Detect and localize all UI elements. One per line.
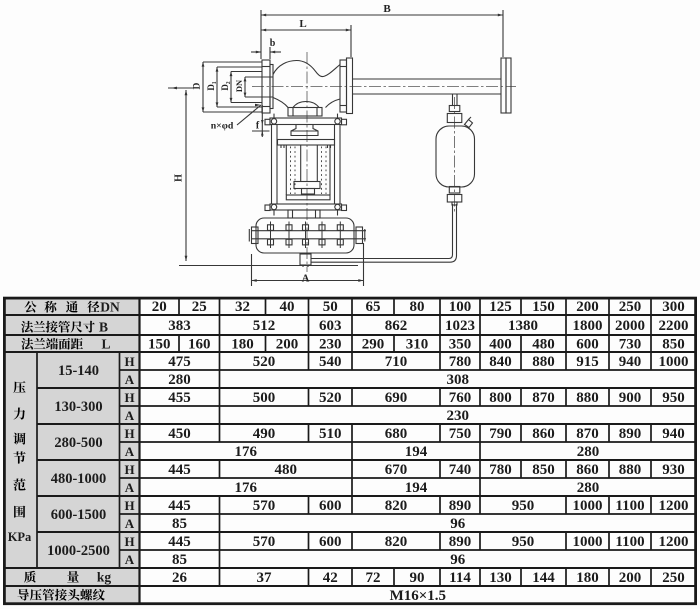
svg-text:400: 400 xyxy=(489,337,512,353)
svg-text:f: f xyxy=(256,121,260,132)
svg-text:520: 520 xyxy=(253,354,276,370)
svg-text:194: 194 xyxy=(405,480,428,496)
svg-text:540: 540 xyxy=(319,354,342,370)
svg-text:37: 37 xyxy=(257,570,273,586)
svg-text:500: 500 xyxy=(253,390,276,406)
svg-text:72: 72 xyxy=(366,570,381,586)
svg-text:850: 850 xyxy=(532,462,555,478)
svg-text:680: 680 xyxy=(385,426,408,442)
svg-text:280: 280 xyxy=(577,444,600,460)
svg-text:870: 870 xyxy=(532,390,555,406)
svg-text:130-300: 130-300 xyxy=(54,399,102,415)
svg-text:570: 570 xyxy=(253,498,276,514)
svg-text:D₁: D₁ xyxy=(206,81,216,90)
svg-text:L: L xyxy=(101,337,110,352)
svg-text:B: B xyxy=(99,320,108,335)
svg-text:H: H xyxy=(124,390,134,405)
svg-text:176: 176 xyxy=(235,480,258,496)
svg-text:280: 280 xyxy=(577,480,600,496)
svg-text:850: 850 xyxy=(662,337,685,353)
svg-text:600-1500: 600-1500 xyxy=(51,507,107,523)
svg-text:42: 42 xyxy=(323,570,338,586)
svg-text:1023: 1023 xyxy=(445,318,475,334)
svg-text:50: 50 xyxy=(323,299,338,315)
svg-text:A: A xyxy=(302,274,310,285)
svg-text:603: 603 xyxy=(319,318,342,334)
svg-text:445: 445 xyxy=(168,462,191,478)
svg-text:B: B xyxy=(383,3,391,15)
svg-text:A: A xyxy=(125,552,135,567)
svg-text:96: 96 xyxy=(450,516,466,532)
svg-text:862: 862 xyxy=(385,318,408,334)
svg-text:383: 383 xyxy=(168,318,191,334)
svg-text:200: 200 xyxy=(619,570,642,586)
svg-text:2000: 2000 xyxy=(615,318,645,334)
svg-text:H: H xyxy=(124,498,134,513)
svg-text:860: 860 xyxy=(576,462,599,478)
svg-text:480-1000: 480-1000 xyxy=(51,471,107,487)
svg-text:570: 570 xyxy=(253,534,276,550)
svg-text:160: 160 xyxy=(188,337,211,353)
svg-text:450: 450 xyxy=(168,426,191,442)
svg-text:b: b xyxy=(270,38,276,49)
svg-text:730: 730 xyxy=(619,337,642,353)
svg-text:308: 308 xyxy=(447,372,470,388)
svg-text:130: 130 xyxy=(489,570,512,586)
svg-text:85: 85 xyxy=(172,516,187,532)
svg-text:520: 520 xyxy=(319,390,342,406)
svg-text:H: H xyxy=(124,462,134,477)
svg-text:1000: 1000 xyxy=(659,354,689,370)
svg-text:H: H xyxy=(124,354,134,369)
svg-text:870: 870 xyxy=(576,426,599,442)
svg-text:A: A xyxy=(125,516,135,531)
svg-text:1000-2500: 1000-2500 xyxy=(47,543,110,559)
svg-text:96: 96 xyxy=(450,552,466,568)
svg-text:490: 490 xyxy=(253,426,276,442)
svg-text:20: 20 xyxy=(152,299,167,315)
svg-text:125: 125 xyxy=(489,299,512,315)
svg-text:A: A xyxy=(125,408,135,423)
svg-text:1380: 1380 xyxy=(508,318,538,334)
svg-text:M16×1.5: M16×1.5 xyxy=(390,588,446,604)
svg-text:1000: 1000 xyxy=(573,534,603,550)
svg-text:A: A xyxy=(125,480,135,495)
svg-text:n×φd: n×φd xyxy=(211,121,234,132)
svg-text:310: 310 xyxy=(406,337,429,353)
svg-text:80: 80 xyxy=(410,299,425,315)
svg-text:1800: 1800 xyxy=(573,318,603,334)
svg-text:1000: 1000 xyxy=(573,498,603,514)
svg-text:510: 510 xyxy=(319,426,342,442)
svg-text:740: 740 xyxy=(449,462,472,478)
svg-text:350: 350 xyxy=(449,337,472,353)
svg-text:25: 25 xyxy=(192,299,207,315)
svg-text:250: 250 xyxy=(662,570,685,586)
svg-text:H: H xyxy=(124,426,134,441)
svg-text:600: 600 xyxy=(319,498,342,514)
svg-text:950: 950 xyxy=(512,498,535,514)
svg-text:480: 480 xyxy=(275,462,298,478)
svg-text:L: L xyxy=(299,18,306,30)
svg-text:H: H xyxy=(124,534,134,549)
svg-text:780: 780 xyxy=(449,354,472,370)
svg-text:32: 32 xyxy=(235,299,250,315)
svg-text:180: 180 xyxy=(231,337,254,353)
svg-text:890: 890 xyxy=(449,498,472,514)
svg-text:600: 600 xyxy=(319,534,342,550)
svg-text:176: 176 xyxy=(235,444,258,460)
svg-text:DN: DN xyxy=(234,79,244,92)
svg-text:144: 144 xyxy=(532,570,555,586)
svg-text:180: 180 xyxy=(576,570,599,586)
svg-text:280-500: 280-500 xyxy=(54,435,102,451)
svg-text:840: 840 xyxy=(489,354,512,370)
svg-text:940: 940 xyxy=(619,354,642,370)
svg-text:940: 940 xyxy=(662,426,685,442)
svg-text:710: 710 xyxy=(385,354,408,370)
svg-text:475: 475 xyxy=(168,354,191,370)
svg-text:90: 90 xyxy=(410,570,425,586)
svg-text:1100: 1100 xyxy=(615,498,644,514)
svg-text:780: 780 xyxy=(489,462,512,478)
svg-text:280: 280 xyxy=(168,372,191,388)
svg-text:445: 445 xyxy=(168,498,191,514)
svg-text:915: 915 xyxy=(576,354,599,370)
svg-text:150: 150 xyxy=(148,337,171,353)
svg-text:750: 750 xyxy=(449,426,472,442)
svg-text:950: 950 xyxy=(662,390,685,406)
svg-text:890: 890 xyxy=(449,534,472,550)
svg-text:85: 85 xyxy=(172,552,187,568)
svg-text:40: 40 xyxy=(280,299,295,315)
svg-text:790: 790 xyxy=(489,426,512,442)
svg-text:670: 670 xyxy=(385,462,408,478)
svg-text:15-140: 15-140 xyxy=(58,363,99,379)
svg-text:KPa: KPa xyxy=(8,530,32,544)
svg-text:200: 200 xyxy=(576,299,599,315)
svg-text:1200: 1200 xyxy=(659,534,689,550)
svg-text:150: 150 xyxy=(532,299,555,315)
svg-text:900: 900 xyxy=(619,390,642,406)
svg-text:690: 690 xyxy=(385,390,408,406)
svg-text:kg: kg xyxy=(97,570,112,585)
svg-text:480: 480 xyxy=(532,337,555,353)
svg-text:820: 820 xyxy=(385,534,408,550)
svg-text:880: 880 xyxy=(532,354,555,370)
svg-text:A: A xyxy=(125,372,135,387)
svg-text:445: 445 xyxy=(168,534,191,550)
svg-text:250: 250 xyxy=(619,299,642,315)
svg-text:950: 950 xyxy=(512,534,535,550)
svg-text:300: 300 xyxy=(662,299,685,315)
svg-text:100: 100 xyxy=(449,299,472,315)
svg-text:455: 455 xyxy=(168,390,191,406)
svg-text:1200: 1200 xyxy=(659,498,689,514)
svg-text:230: 230 xyxy=(447,408,470,424)
svg-text:760: 760 xyxy=(449,390,472,406)
svg-text:114: 114 xyxy=(449,570,471,586)
svg-text:290: 290 xyxy=(362,337,385,353)
svg-text:230: 230 xyxy=(319,337,342,353)
svg-text:890: 890 xyxy=(619,426,642,442)
svg-text:512: 512 xyxy=(253,318,276,334)
svg-text:800: 800 xyxy=(489,390,512,406)
svg-text:880: 880 xyxy=(619,462,642,478)
svg-text:DN: DN xyxy=(100,300,120,315)
svg-text:880: 880 xyxy=(576,390,599,406)
svg-text:1100: 1100 xyxy=(615,534,644,550)
svg-text:A: A xyxy=(125,444,135,459)
svg-text:65: 65 xyxy=(366,299,381,315)
svg-text:194: 194 xyxy=(405,444,428,460)
svg-text:200: 200 xyxy=(276,337,299,353)
svg-text:2200: 2200 xyxy=(659,318,689,334)
svg-text:D₂: D₂ xyxy=(220,81,230,90)
svg-text:820: 820 xyxy=(385,498,408,514)
svg-text:930: 930 xyxy=(662,462,685,478)
svg-text:860: 860 xyxy=(532,426,555,442)
svg-text:600: 600 xyxy=(576,337,599,353)
svg-text:26: 26 xyxy=(172,570,188,586)
svg-text:H: H xyxy=(174,174,185,182)
